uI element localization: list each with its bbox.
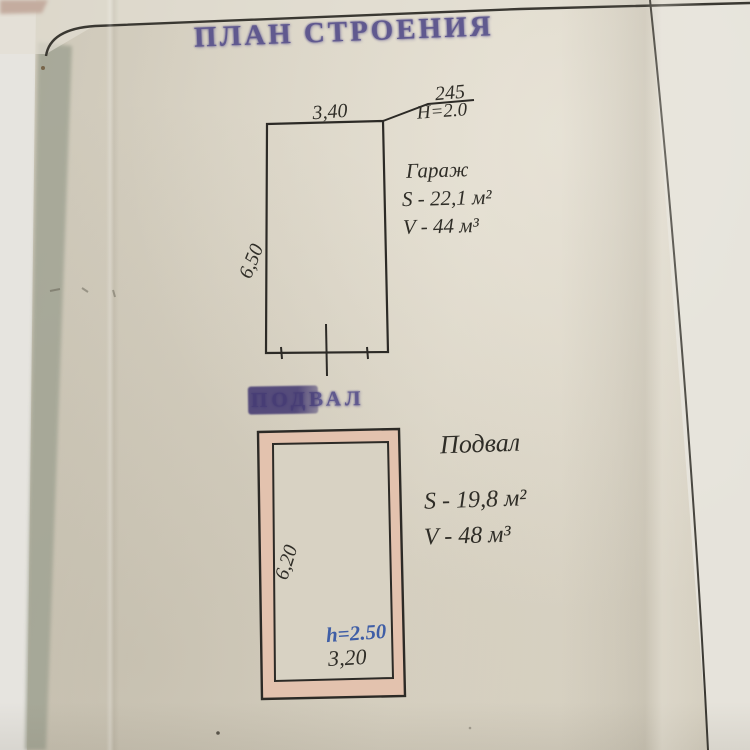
ink-blob xyxy=(248,385,318,414)
garage-door-tick-left xyxy=(281,347,282,359)
garage-area-value: S - 22,1 м² xyxy=(402,185,492,212)
paper-speck xyxy=(469,727,472,730)
garage-height-note: H=2.0 xyxy=(409,99,474,125)
paper-speck xyxy=(41,66,45,70)
pencil-mark xyxy=(113,290,115,297)
basement-volume-value: V - 48 м³ xyxy=(424,521,512,551)
garage-volume-value: V - 44 м³ xyxy=(403,213,480,240)
garage-centerline xyxy=(326,324,327,376)
basement-label: Подвал xyxy=(440,428,521,461)
garage-outline xyxy=(266,121,388,353)
garage-width-dimension: 3,40 xyxy=(304,99,355,125)
right-page-edge xyxy=(650,0,750,750)
photographed-plan-page: ПЛАН СТРОЕНИЯ ПОДВАЛ 3,40 6,50 245 H=2.0… xyxy=(0,0,750,750)
paper-speck xyxy=(216,731,220,735)
basement-area-value: S - 19,8 м² xyxy=(424,485,527,516)
garage-door-tick-right xyxy=(367,347,368,359)
garage-label: Гараж xyxy=(406,157,469,184)
pencil-mark xyxy=(82,288,88,292)
basement-width-dimension: 3,20 xyxy=(327,644,367,672)
